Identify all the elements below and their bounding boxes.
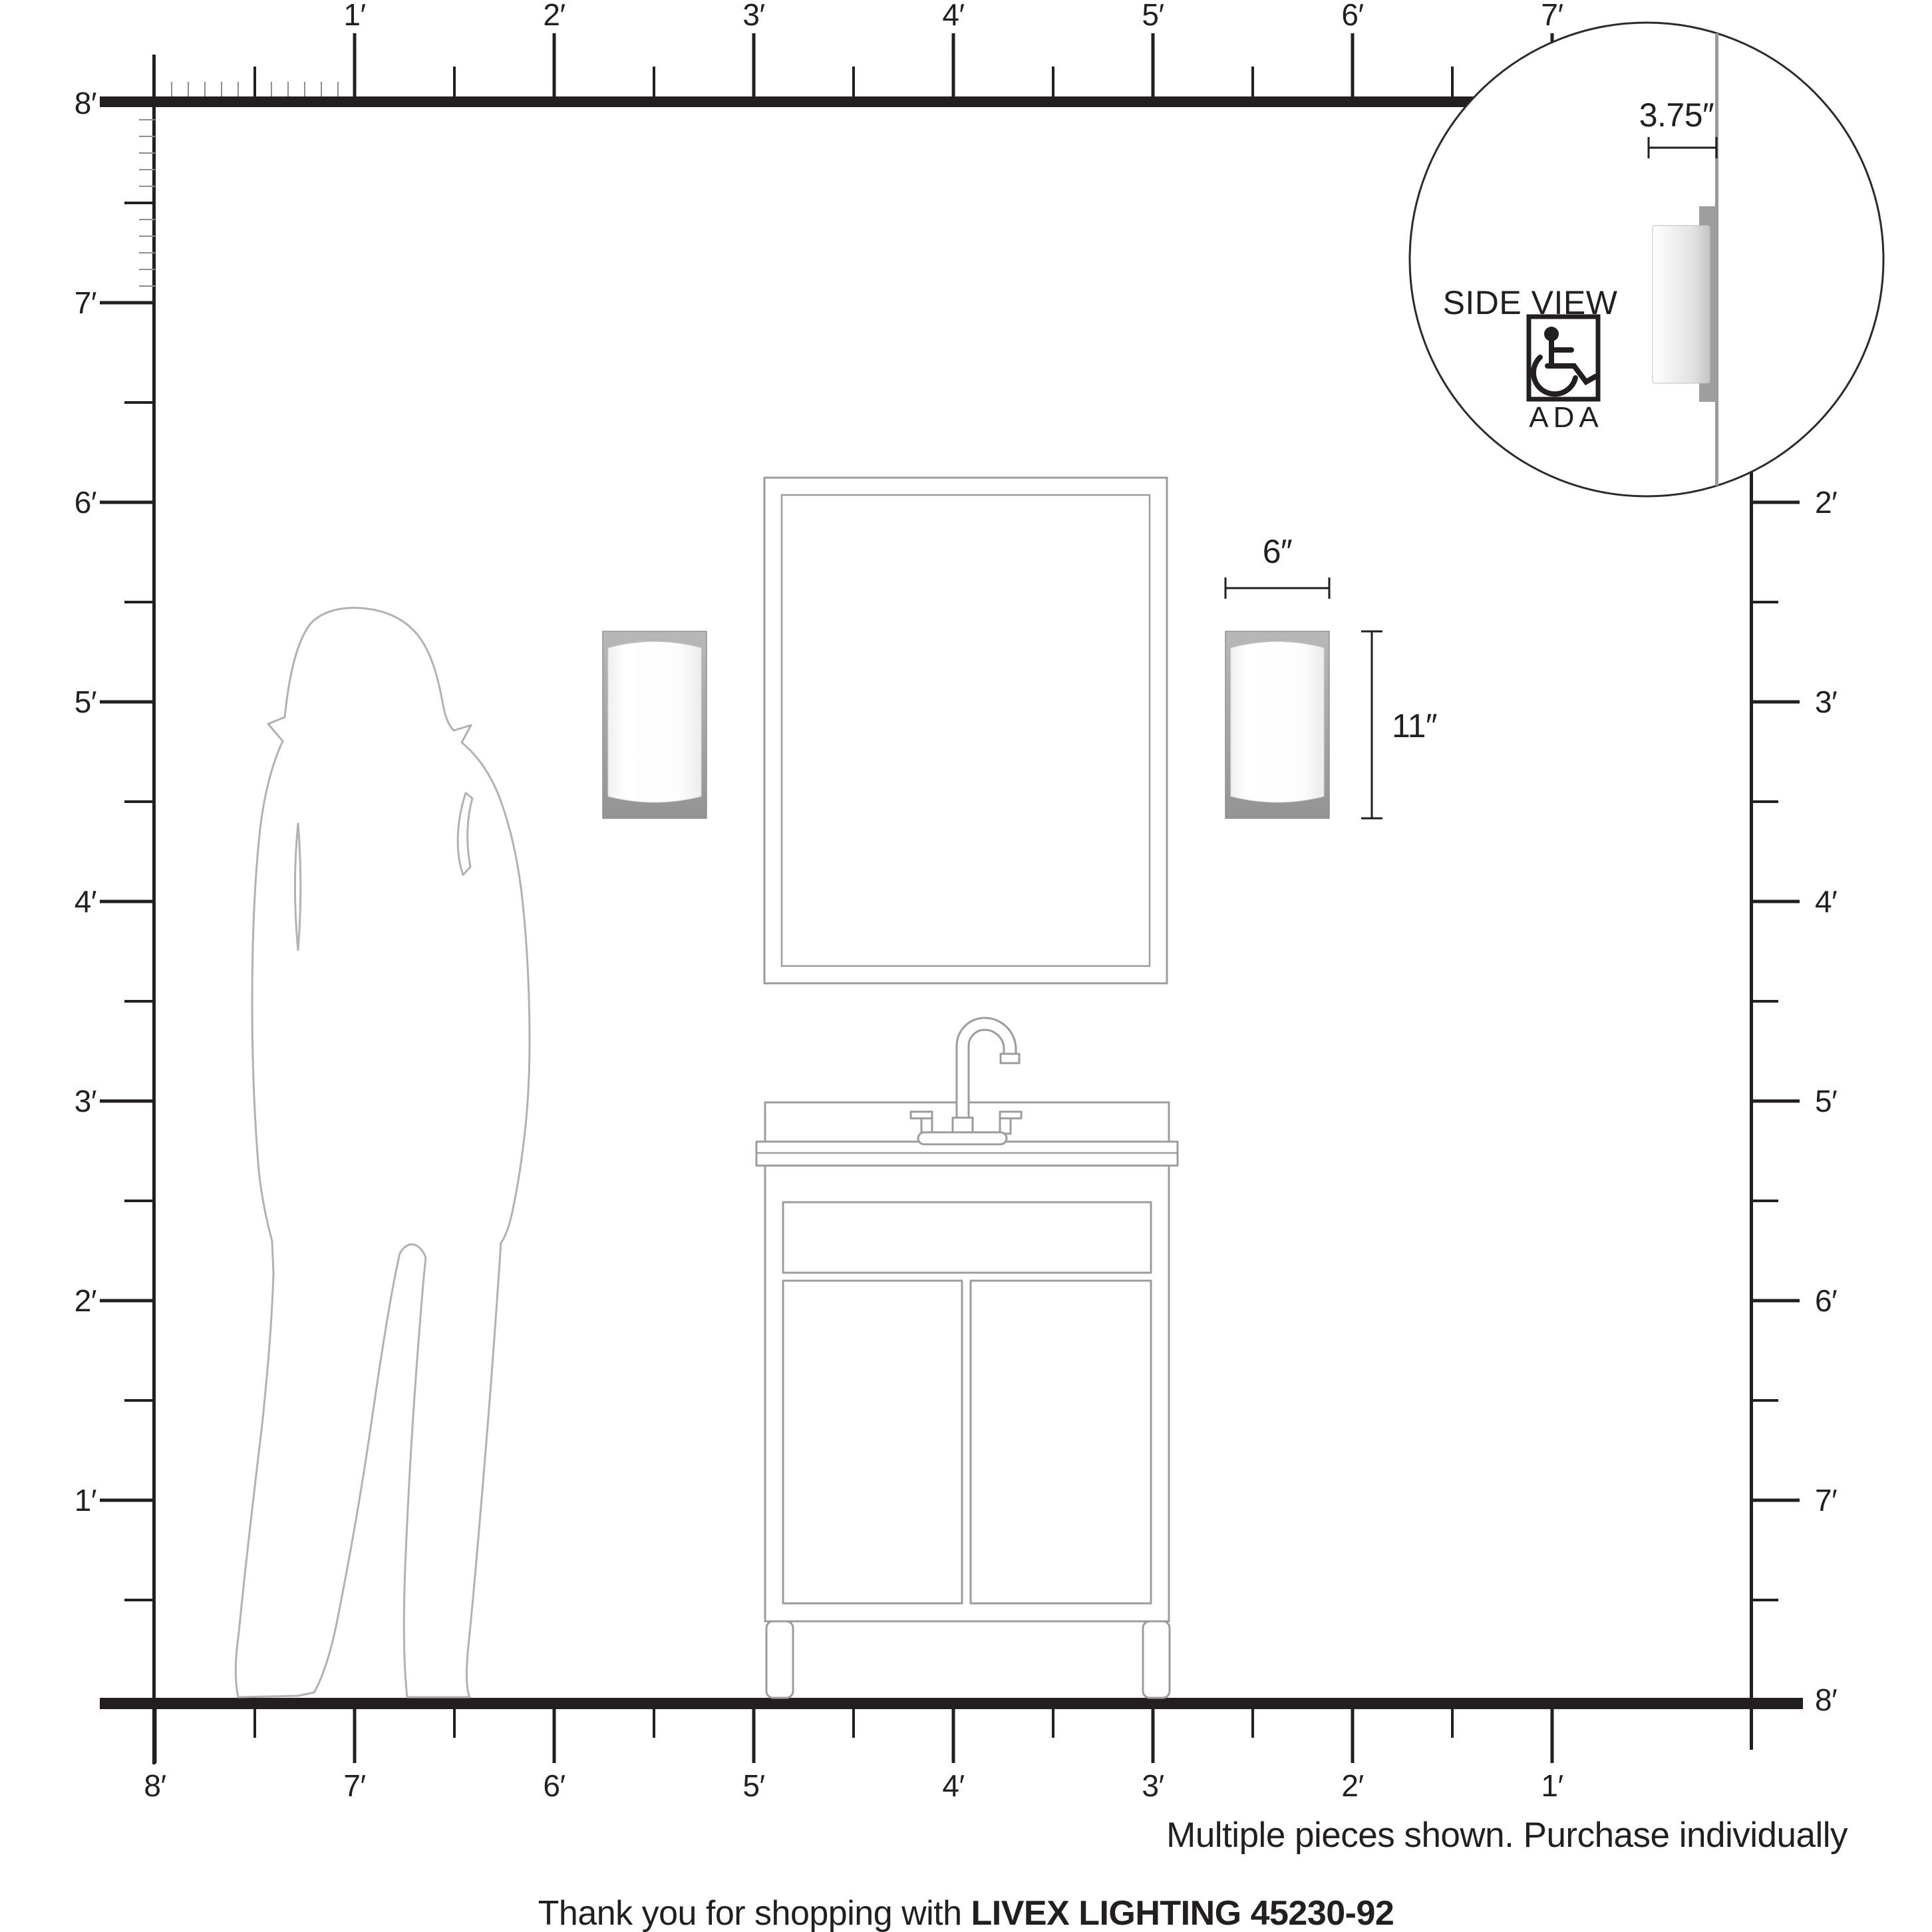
left-ruler-inch-tick [139, 269, 155, 270]
right-ruler-label: 3′ [1815, 685, 1837, 719]
top-ruler-inch-tick [204, 82, 206, 96]
left-ruler-inch-tick [139, 152, 155, 154]
top-ruler-inch-tick [221, 82, 222, 96]
bottom-ruler-foot-tick [353, 1709, 357, 1763]
vanity-leg-right [1143, 1621, 1170, 1698]
left-ruler-foot-tick [100, 1499, 155, 1502]
left-ruler-inch-tick [139, 186, 155, 187]
height-dimension [1361, 631, 1382, 818]
right-ruler-half-foot-tick [1753, 1200, 1778, 1202]
left-ruler-inch-tick [139, 119, 155, 120]
wall-sconce-right [1225, 631, 1329, 818]
side-view-inset: 3.75″ SIDE VIEW ADA [1410, 23, 1883, 496]
bottom-ruler-label: 3′ [1142, 1768, 1164, 1803]
bottom-ruler-foot-tick [952, 1709, 955, 1763]
left-wall-ruler-line [152, 55, 156, 1764]
faucet-joint [953, 1118, 973, 1134]
bottom-ruler-label: 8′ [144, 1768, 166, 1803]
top-ruler-inch-tick [304, 82, 305, 96]
left-ruler-half-foot-tick [124, 800, 155, 803]
left-ruler-foot-tick [100, 701, 155, 704]
sconce-shade [608, 642, 701, 803]
left-ruler-inch-tick [139, 219, 155, 220]
right-wall-ruler-line [1750, 466, 1753, 1750]
right-ruler-label: 6′ [1815, 1283, 1837, 1318]
ada-label: ADA [1529, 401, 1603, 434]
top-ruler-inch-tick [171, 82, 172, 96]
bottom-ruler-half-foot-tick [653, 1709, 655, 1738]
right-ruler-half-foot-tick [1753, 601, 1778, 603]
vanity-leg-left [766, 1621, 793, 1698]
scale-diagram: 1′2′3′4′5′6′7′8′7′6′5′4′3′2′1′2′3′4′5′6′… [0, 0, 1932, 1932]
top-ruler-label: 7′ [1541, 0, 1563, 32]
left-ruler-foot-tick [100, 900, 155, 903]
right-ruler-foot-tick [1753, 501, 1800, 504]
bottom-ruler-foot-tick [1351, 1709, 1355, 1763]
top-ruler-foot-tick [353, 33, 357, 96]
top-ruler-half-foot-tick [453, 67, 456, 96]
top-ruler-foot-tick [553, 33, 556, 96]
left-ruler-inch-tick [139, 285, 155, 287]
sconce-shade [1231, 642, 1324, 803]
top-ruler-inch-tick [321, 82, 322, 96]
footer-line: Thank you for shopping with LIVEX LIGHTI… [538, 1894, 1394, 1932]
right-ruler-label: 7′ [1815, 1483, 1837, 1518]
top-ruler-foot-tick [1152, 33, 1155, 96]
bottom-ruler-half-foot-tick [852, 1709, 855, 1738]
right-ruler-foot-tick [1753, 701, 1800, 704]
right-ruler-label: 5′ [1815, 1084, 1837, 1118]
top-ruler-half-foot-tick [1052, 67, 1054, 96]
faucet [911, 1024, 1021, 1144]
top-ruler-foot-tick [952, 33, 955, 96]
top-ruler-label: 4′ [942, 0, 964, 32]
left-ruler-half-foot-tick [124, 1599, 155, 1601]
left-ruler-label: 6′ [75, 485, 96, 520]
faucet-aerator [1001, 1054, 1019, 1063]
left-ruler-inch-tick [139, 252, 155, 253]
top-ruler-inch-tick [287, 82, 289, 96]
left-ruler-label: 1′ [75, 1483, 96, 1518]
ceiling-bar [100, 96, 1533, 107]
bottom-ruler-half-foot-tick [453, 1709, 456, 1738]
arm-gap-left [295, 824, 301, 950]
left-ruler-inch-tick [139, 136, 155, 137]
top-ruler-half-foot-tick [1251, 67, 1254, 96]
top-ruler-half-foot-tick [253, 67, 256, 96]
top-ruler-inch-tick [271, 82, 272, 96]
left-ruler-label: 5′ [75, 685, 96, 719]
wall-sconce-left [603, 631, 707, 818]
ada-badge: ADA [1529, 317, 1603, 434]
left-ruler-label: 8′ [75, 86, 96, 120]
bottom-ruler-foot-tick [1551, 1709, 1554, 1763]
inset-circle [1410, 23, 1883, 496]
top-ruler-label: 1′ [343, 0, 365, 32]
bottom-ruler-foot-tick [752, 1709, 756, 1763]
bottom-ruler-half-foot-tick [1251, 1709, 1254, 1738]
top-ruler-label: 2′ [543, 0, 565, 32]
vanity-drawer-panel [783, 1202, 1151, 1273]
right-ruler-foot-tick [1753, 1299, 1800, 1303]
bottom-ruler-label: 1′ [1541, 1768, 1563, 1803]
bottom-ruler-foot-tick [553, 1709, 556, 1763]
mirror-inner-frame [782, 495, 1150, 966]
left-ruler-half-foot-tick [124, 1000, 155, 1003]
top-ruler-label: 6′ [1341, 0, 1363, 32]
left-ruler-foot-tick [100, 1100, 155, 1103]
right-ruler-half-foot-tick [1753, 1000, 1778, 1003]
inset-sconce-diffuser-side [1653, 226, 1710, 383]
right-ruler-foot-tick [1753, 900, 1800, 903]
width-dimension [1225, 577, 1329, 599]
vanity [756, 1024, 1178, 1698]
left-ruler-label: 4′ [75, 884, 96, 919]
diagram-page: 1′2′3′4′5′6′7′8′7′6′5′4′3′2′1′2′3′4′5′6′… [0, 0, 1932, 1932]
bottom-ruler-label: 5′ [742, 1768, 764, 1803]
left-ruler-foot-tick [100, 301, 155, 305]
mirror [764, 478, 1167, 983]
vanity-door-right [971, 1281, 1151, 1603]
top-ruler-label: 3′ [742, 0, 764, 32]
top-ruler-half-foot-tick [852, 67, 855, 96]
left-ruler-inch-tick [139, 236, 155, 237]
left-ruler-half-foot-tick [124, 1200, 155, 1202]
left-ruler-label: 7′ [75, 285, 96, 320]
top-ruler-half-foot-tick [653, 67, 655, 96]
left-ruler-half-foot-tick [124, 601, 155, 603]
top-ruler-foot-tick [1351, 33, 1355, 96]
right-ruler-half-foot-tick [1753, 1599, 1778, 1601]
bottom-ruler-half-foot-tick [253, 1709, 256, 1738]
right-ruler-foot-tick [1753, 1499, 1800, 1502]
faucet-handle-right-stem [1000, 1118, 1011, 1134]
height-dim-label: 11″ [1392, 707, 1437, 744]
left-ruler-foot-tick [100, 501, 155, 504]
footer-thanks: Thank you for shopping with [538, 1894, 971, 1932]
faucet-base-plate [918, 1132, 1007, 1144]
bottom-ruler-label: 4′ [942, 1768, 964, 1803]
bottom-ruler-foot-tick [1152, 1709, 1155, 1763]
bottom-ruler-label: 6′ [543, 1768, 565, 1803]
left-ruler-foot-tick [100, 1299, 155, 1303]
left-ruler-half-foot-tick [124, 1399, 155, 1402]
top-ruler-foot-tick [752, 33, 756, 96]
right-ruler-half-foot-tick [1753, 800, 1778, 803]
right-ruler-foot-tick [1753, 1100, 1800, 1103]
top-ruler-inch-tick [188, 82, 189, 96]
scale-figure-woman [236, 608, 530, 1697]
footer-brand: LIVEX LIGHTING 45230-92 [971, 1894, 1394, 1932]
floor-bar [100, 1698, 1803, 1709]
right-ruler-label: 8′ [1815, 1683, 1837, 1717]
top-ruler-label: 5′ [1142, 0, 1164, 32]
right-ruler-label: 4′ [1815, 884, 1837, 919]
woman-silhouette [236, 608, 530, 1697]
vanity-door-left [783, 1281, 962, 1603]
bottom-ruler-half-foot-tick [1451, 1709, 1454, 1738]
left-ruler-half-foot-tick [124, 401, 155, 404]
depth-dim-label: 3.75″ [1639, 96, 1714, 134]
right-ruler-half-foot-tick [1753, 1399, 1778, 1402]
bottom-ruler-label: 2′ [1341, 1768, 1363, 1803]
left-ruler-label: 2′ [75, 1283, 96, 1318]
top-ruler-half-foot-tick [1451, 67, 1454, 96]
bottom-ruler-foot-tick [154, 1709, 157, 1763]
width-dim-label: 6″ [1263, 533, 1293, 570]
right-ruler-label: 2′ [1815, 485, 1837, 520]
left-ruler-label: 3′ [75, 1084, 96, 1118]
left-ruler-half-foot-tick [124, 202, 155, 204]
purchase-note: Multiple pieces shown. Purchase individu… [1166, 1816, 1848, 1855]
top-ruler-inch-tick [238, 82, 239, 96]
left-ruler-inch-tick [139, 169, 155, 170]
bottom-ruler-half-foot-tick [1052, 1709, 1054, 1738]
bottom-ruler-label: 7′ [343, 1768, 365, 1803]
top-ruler-inch-tick [337, 82, 339, 96]
